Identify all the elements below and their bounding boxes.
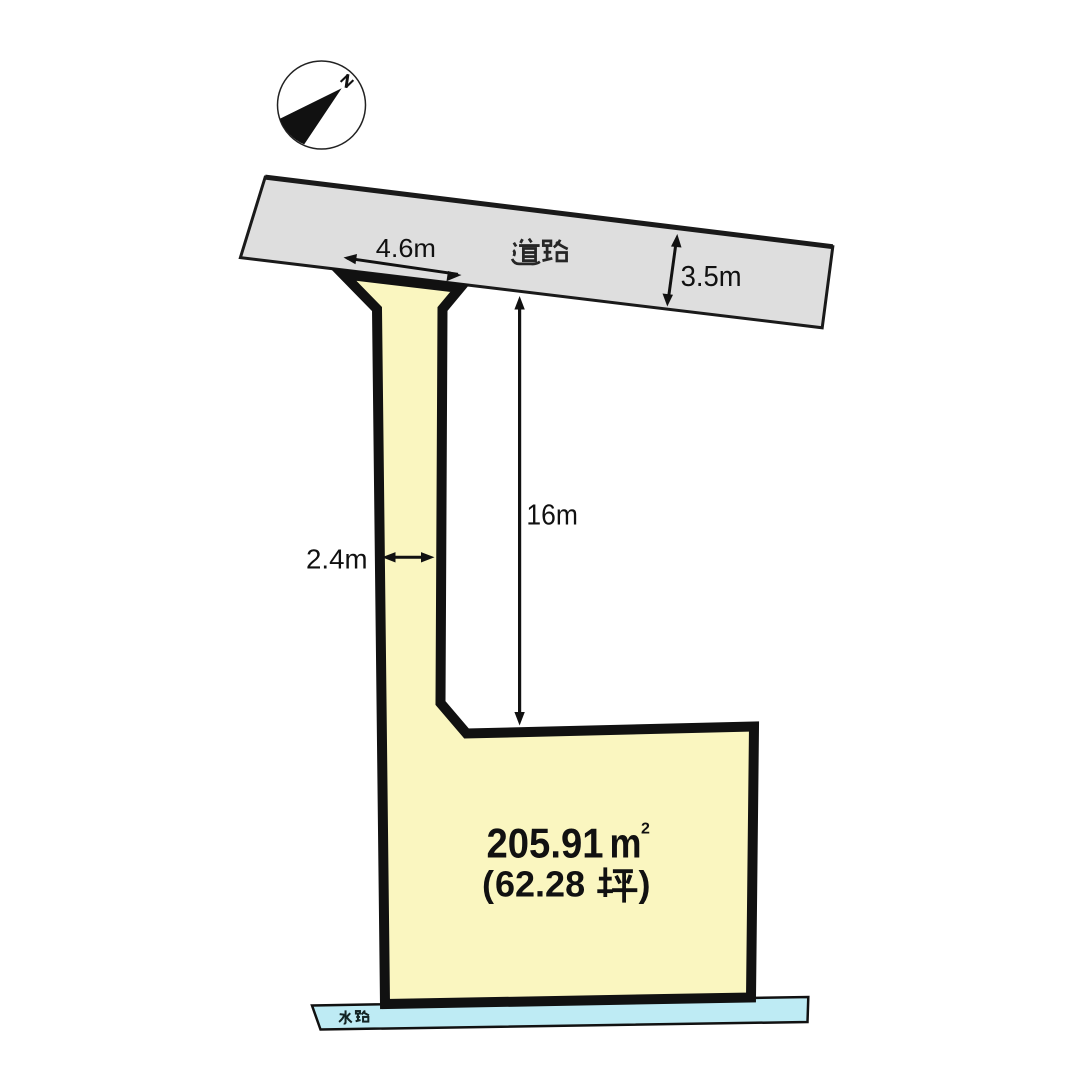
svg-text:2.4m: 2.4m <box>306 544 368 575</box>
svg-text:62.28: 62.28 <box>495 864 585 905</box>
svg-text:205.91: 205.91 <box>487 819 604 866</box>
svg-text:4.6m: 4.6m <box>376 233 436 263</box>
svg-text:2: 2 <box>641 821 650 838</box>
svg-text:3.5m: 3.5m <box>681 261 742 293</box>
svg-text:16m: 16m <box>526 500 578 532</box>
svg-text:m: m <box>610 819 642 866</box>
svg-text:): ) <box>639 864 651 905</box>
svg-text:(: ( <box>482 864 494 905</box>
